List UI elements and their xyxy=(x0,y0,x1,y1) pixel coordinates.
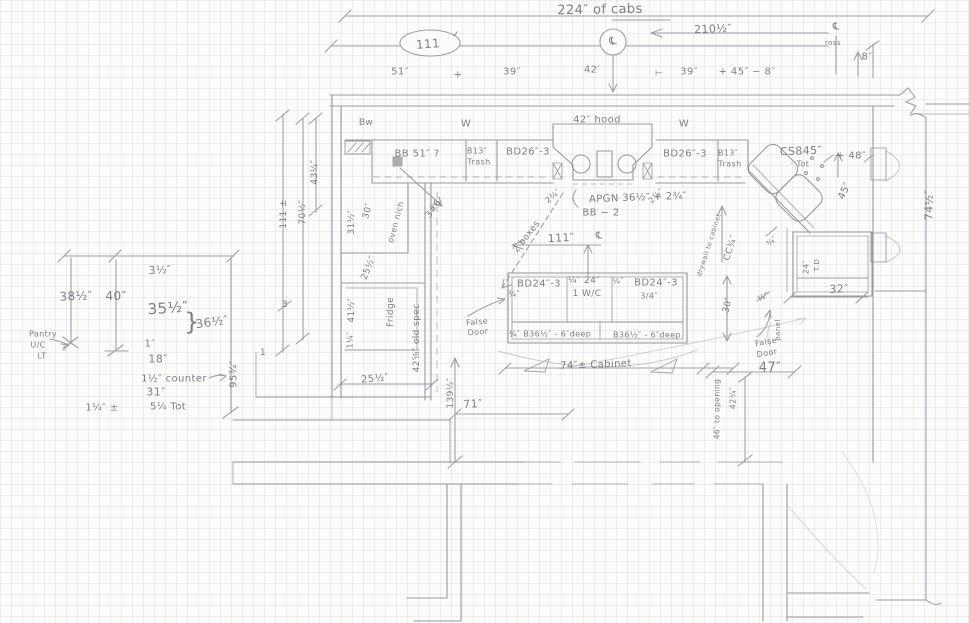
sink xyxy=(553,124,652,184)
label-brace-36: } xyxy=(184,308,200,336)
label-dim-42: 42′ xyxy=(584,65,600,76)
label-island-34-r: 3/4″ xyxy=(640,292,657,301)
label-note-counter: 1½″ counter xyxy=(141,374,207,385)
door-arc-bottom-right-2 xyxy=(842,452,878,574)
label-dim-210half: 210½″ xyxy=(694,22,732,36)
door-swings xyxy=(789,148,900,589)
label-num-3: 3 xyxy=(282,300,288,310)
label-cab-cs845: CS845″ xyxy=(780,144,823,158)
label-window-w-left: W xyxy=(461,119,471,130)
label-cabs-total: 224″ of cabs xyxy=(557,2,643,18)
label-plus-a: + xyxy=(454,70,463,81)
label-old-spec: 42⅝″ old spec xyxy=(412,303,422,372)
label-island-bd24-r: BD24″-3 xyxy=(634,278,678,289)
label-dim-1in: 1″ xyxy=(145,339,156,350)
label-ross-note: ross xyxy=(825,39,841,47)
label-sep-tick: ⊢ xyxy=(655,69,663,79)
label-dim-1quarter-col: 1¼″ xyxy=(346,331,355,348)
label-dim-4234-opening: 42¾″ xyxy=(729,387,738,410)
label-dim-24-box: 24″ xyxy=(802,260,811,274)
label-false-door-l2: Door xyxy=(467,327,489,338)
label-dim-3half: 3½″ xyxy=(148,263,172,277)
label-dim-39b: 39″ xyxy=(680,67,698,78)
label-dim-70half: 70½″ xyxy=(298,199,308,224)
door-arc-bottom-right xyxy=(789,507,866,589)
label-pantry-3: LT xyxy=(37,352,46,361)
label-dim-32: 32″ xyxy=(829,282,849,296)
label-island-quarter: ¼″ xyxy=(612,277,624,286)
door-arc-lower xyxy=(886,236,900,262)
label-pantry-2: U/C xyxy=(30,341,45,350)
label-fridge-label: Fridge xyxy=(386,297,396,327)
label-island-b36-l: ¾″ B36½″ - 6″deep xyxy=(509,330,592,339)
label-dim-38half: 38½″ xyxy=(59,288,92,303)
label-dim-45-8: + 45″ − 8″ xyxy=(719,67,776,78)
label-hood-42: 42″ hood xyxy=(573,115,621,126)
label-dim-47: 47″ xyxy=(759,361,782,376)
label-dim-111-center: 111″ xyxy=(547,231,574,245)
label-dim-95threequarter: 95¾″ xyxy=(229,360,240,388)
sink-basin-left xyxy=(572,155,590,173)
label-num-1: 1 xyxy=(260,348,266,358)
label-dim-35half: 35½″ xyxy=(147,298,189,319)
fridge-column xyxy=(341,157,442,400)
hatch-box xyxy=(345,141,370,154)
label-window-bw: Bw xyxy=(359,118,373,128)
counter-arrow xyxy=(209,374,226,381)
label-dim-74half: 74½″ xyxy=(923,190,936,220)
label-dim-31half-col: 31½″ xyxy=(347,209,357,234)
label-island-34-l: ¾″ xyxy=(508,290,520,299)
graph-paper-sheet: 224″ of cabs111✓℄210½″℄ross8″51″+39″42′⊢… xyxy=(0,0,969,623)
label-dim-40: 40″ xyxy=(106,289,127,303)
label-cl-right: ℄ xyxy=(833,22,840,33)
label-dim-5quarter-tot: 5¼ Tot xyxy=(150,402,186,413)
label-cab-b13-l: B13″ xyxy=(467,147,487,156)
label-cab-bd26-l: BD26″-3 xyxy=(506,147,550,158)
corner-cabinet-face xyxy=(748,170,810,233)
label-dim-8: 8″ xyxy=(862,52,873,63)
burner-2 xyxy=(772,171,826,225)
label-dim-139half: 139½″ xyxy=(446,377,456,408)
label-island-bd24-l: BD24″-3 xyxy=(517,279,561,290)
label-dim-41half: 41½″ xyxy=(347,297,357,322)
label-island-1wc: 1 W/C xyxy=(573,289,602,299)
label-island-quarter24: ¼″ 24″ xyxy=(568,276,600,286)
label-dim-48: + 48″ xyxy=(836,151,866,162)
floor-plan-linework xyxy=(0,0,969,623)
faucet xyxy=(597,151,612,177)
label-cab-b13-r-trash: Trash xyxy=(718,160,741,169)
label-cab-b13-r: B13″ xyxy=(718,149,738,158)
label-island-b36-r: B36½″ - 6″deep xyxy=(613,331,681,340)
door-arc-upper xyxy=(886,151,900,181)
label-cab-b13-l-trash: Trash xyxy=(467,158,490,167)
label-dim-111-left: 111 ± xyxy=(279,199,289,229)
label-cs845-tot: · Tot xyxy=(791,160,810,169)
label-cl-center: ℄ xyxy=(596,231,603,242)
pantry-arrow xyxy=(50,339,69,350)
label-note-to-opening: 46″ to opening xyxy=(713,379,722,440)
label-dim-39a: 39″ xyxy=(503,67,521,78)
label-bb2-note: BB − 2 xyxy=(582,208,619,219)
apron-paren xyxy=(573,190,578,207)
label-dim-1quarter-pm: 1¼″ ± xyxy=(85,403,118,414)
label-pantry-1: Pantry xyxy=(29,330,57,339)
label-dim-71: 71″ xyxy=(463,397,483,411)
label-cab-bb51: BB 51″ ? xyxy=(394,149,439,160)
label-cl-top: ℄ xyxy=(608,34,617,48)
label-dim-43half: 43½″ xyxy=(310,159,320,184)
walls xyxy=(233,88,969,621)
label-dim-111-top: 111 xyxy=(415,36,440,52)
label-dim-18: 18″ xyxy=(148,353,167,366)
label-window-w-right: W xyxy=(679,119,689,130)
label-dim-31: 31″ xyxy=(146,386,165,399)
label-cab-bd26-r: BD26″-3 xyxy=(663,149,707,160)
label-td-note: T.D xyxy=(813,259,821,271)
label-check-111: ✓ xyxy=(452,30,460,40)
label-dim-51: 51″ xyxy=(391,67,409,78)
